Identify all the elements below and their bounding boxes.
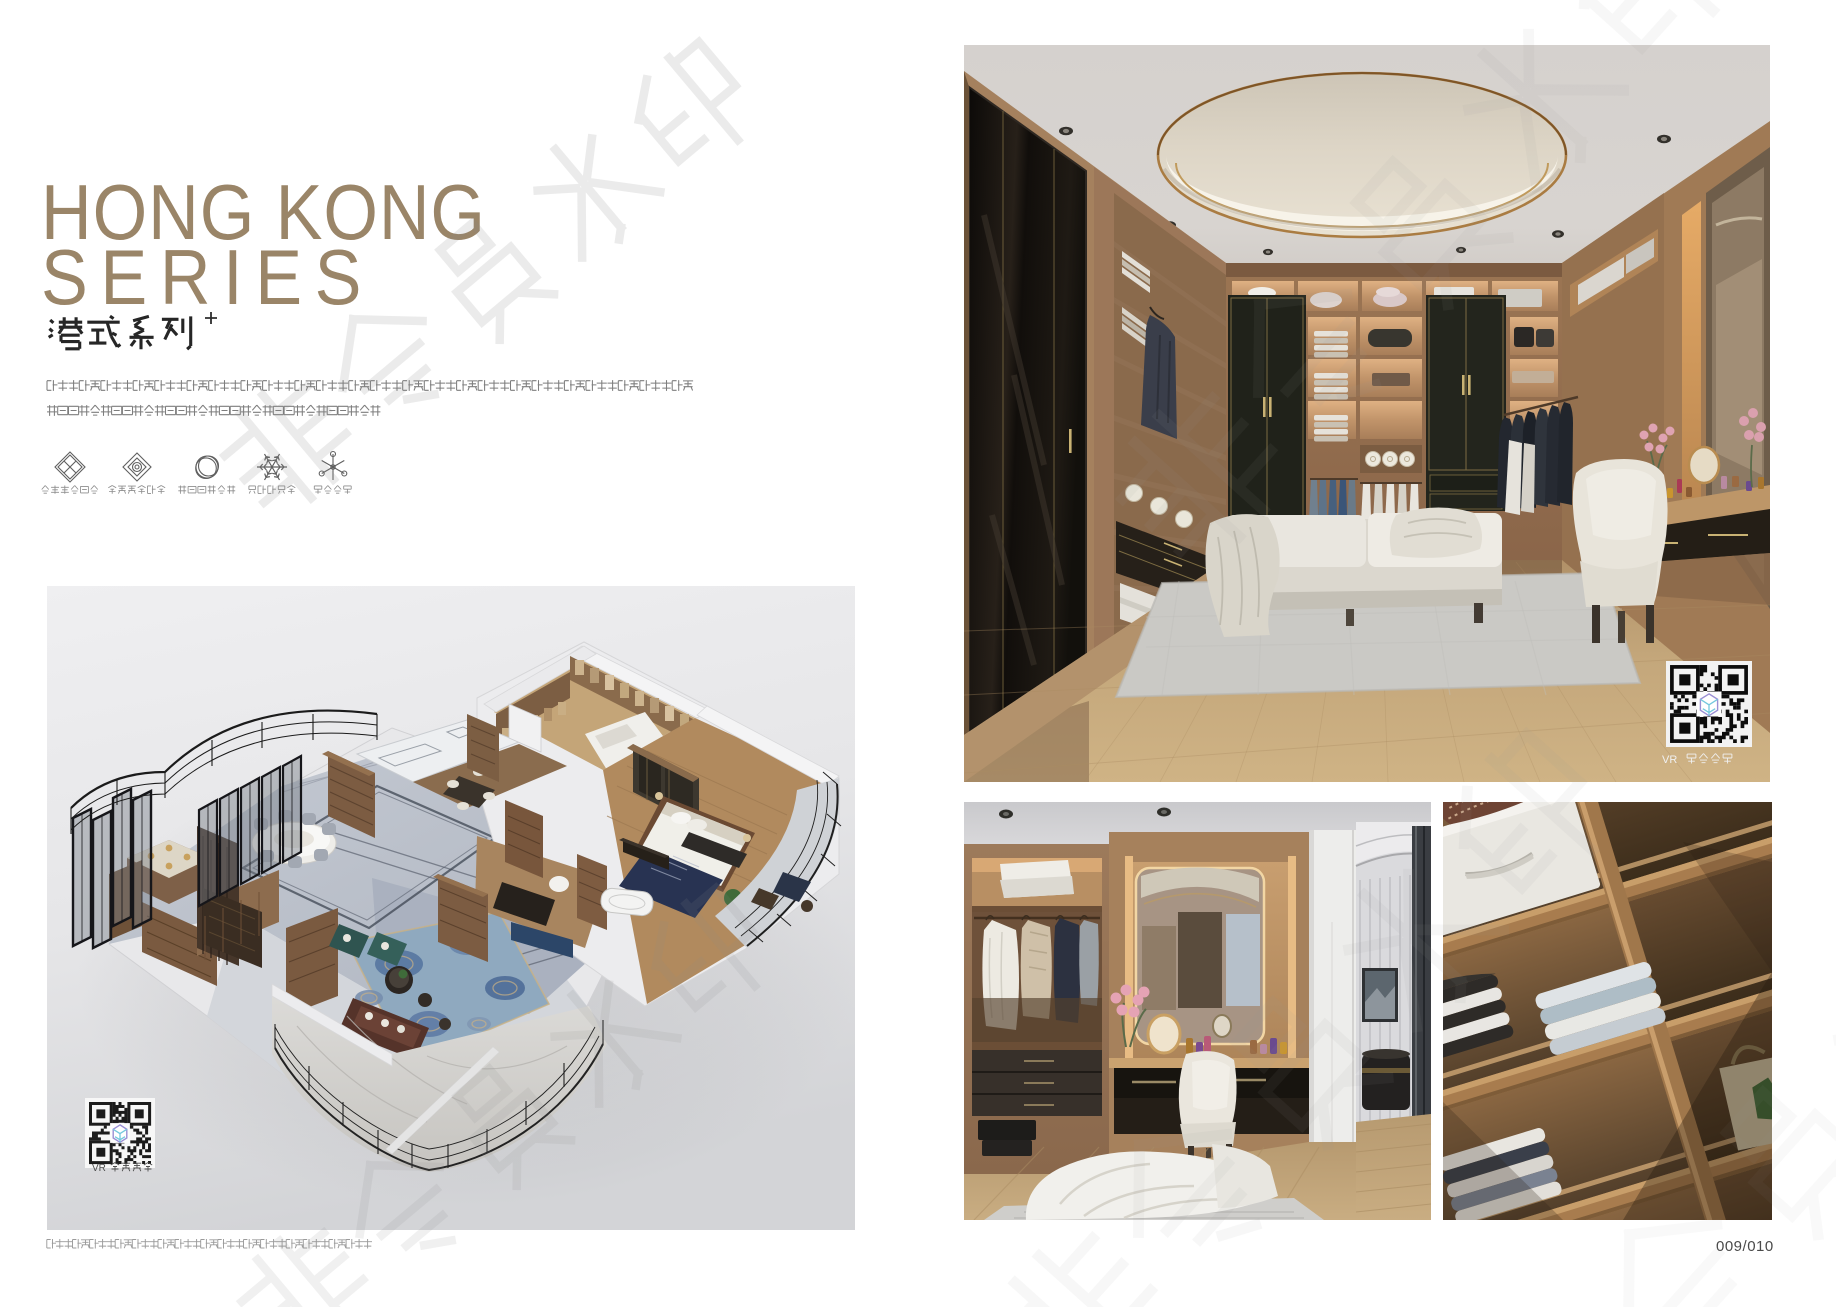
svg-text:VR: VR bbox=[92, 1163, 106, 1174]
svg-text:VR: VR bbox=[1662, 754, 1677, 766]
